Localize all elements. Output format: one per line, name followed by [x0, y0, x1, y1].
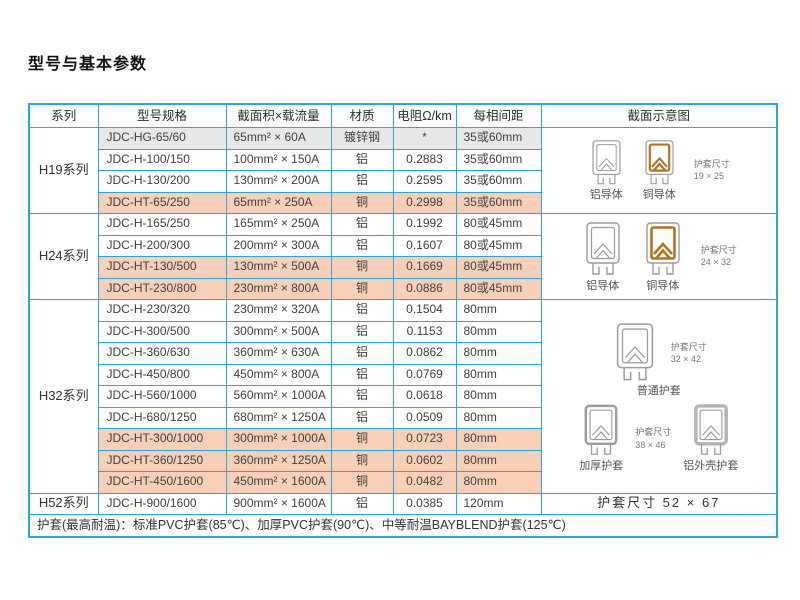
spec-cell: 200mm² × 300A	[226, 235, 331, 257]
series-cell: H32系列	[29, 300, 98, 494]
model-cell: JDC-HG-65/60	[98, 128, 226, 150]
spec-cell: 65mm² × 250A	[226, 192, 331, 214]
spacing-cell: 80mm	[456, 364, 541, 386]
diagram-cell: 护套尺寸32 × 42 普通护套 加厚护套护套尺寸38 × 46 铝外壳护套	[541, 300, 777, 494]
footer-row: 护套(最高耐温)：标准PVC护套(85℃)、加厚PVC护套(90℃)、中等耐温B…	[29, 515, 777, 538]
material-cell: 铜	[331, 257, 393, 279]
spec-cell: 450mm² × 1600A	[226, 472, 331, 494]
spec-cell: 130mm² × 200A	[226, 171, 331, 193]
resistance-cell: 0.1607	[393, 235, 456, 257]
spacing-cell: 80mm	[456, 407, 541, 429]
series-cell: H24系列	[29, 214, 98, 300]
spacing-cell: 35或60mm	[456, 128, 541, 150]
material-cell: 镀锌钢	[331, 128, 393, 150]
diagram-label: 普通护套	[637, 385, 681, 398]
spec-cell: 300mm² × 1000A	[226, 429, 331, 451]
profile-diagram: 铝外壳护套	[683, 404, 738, 473]
model-cell: JDC-H-680/1250	[98, 407, 226, 429]
resistance-cell: 0.0385	[393, 493, 456, 515]
model-cell: JDC-H-230/320	[98, 300, 226, 322]
diagram-label: 加厚护套	[579, 460, 623, 473]
resistance-cell: 0.1504	[393, 300, 456, 322]
model-cell: JDC-HT-230/800	[98, 278, 226, 300]
spec-cell: 680mm² × 1250A	[226, 407, 331, 429]
resistance-cell: 0.0723	[393, 429, 456, 451]
resistance-cell: 0.0886	[393, 278, 456, 300]
diagram-label: 铝外壳护套	[683, 460, 738, 473]
spec-cell: 900mm² × 1600A	[226, 493, 331, 515]
spacing-cell: 80mm	[456, 300, 541, 322]
col-header-section: 截面示意图	[541, 104, 777, 128]
model-cell: JDC-H-100/150	[98, 149, 226, 171]
col-header-model: 型号规格	[98, 104, 226, 128]
model-cell: JDC-HT-130/500	[98, 257, 226, 279]
resistance-cell: *	[393, 128, 456, 150]
model-cell: JDC-H-900/1600	[98, 493, 226, 515]
page: 型号与基本参数 系列 型号规格 截面积×载流量 材质 电阻Ω/km 每相间距 截…	[0, 0, 800, 600]
spec-cell: 65mm² × 60A	[226, 128, 331, 150]
spacing-cell: 80mm	[456, 472, 541, 494]
spacing-cell: 80mm	[456, 343, 541, 365]
spacing-cell: 35或60mm	[456, 192, 541, 214]
spacing-cell: 120mm	[456, 493, 541, 515]
profile-diagram: 铜导体	[641, 221, 685, 293]
sheath-dimension-label: 护套尺寸38 × 46	[635, 426, 671, 450]
model-cell: JDC-H-450/800	[98, 364, 226, 386]
col-header-series: 系列	[29, 104, 98, 128]
profile-normal-icon	[611, 322, 659, 385]
spacing-cell: 80mm	[456, 450, 541, 472]
spec-cell: 300mm² × 500A	[226, 321, 331, 343]
resistance-cell: 0.0862	[393, 343, 456, 365]
table-row: H32系列JDC-H-230/320230mm² × 320A铝0.150480…	[29, 300, 777, 322]
sheath-dimension-label: 护套尺寸24 × 32	[701, 244, 737, 268]
profile-diagram: 铝导体	[581, 221, 625, 293]
model-cell: JDC-H-560/1000	[98, 386, 226, 408]
col-header-area: 截面积×载流量	[226, 104, 331, 128]
material-cell: 铜	[331, 429, 393, 451]
resistance-cell: 0.1153	[393, 321, 456, 343]
spacing-cell: 80mm	[456, 429, 541, 451]
spec-table-body: H19系列JDC-HG-65/6065mm² × 60A镀锌钢*35或60mm …	[29, 128, 777, 538]
table-row: H24系列JDC-H-165/250165mm² × 250A铝0.199280…	[29, 214, 777, 236]
spec-cell: 165mm² × 250A	[226, 214, 331, 236]
material-cell: 铝	[331, 171, 393, 193]
diagram-label: 铝导体	[590, 189, 623, 202]
model-cell: JDC-H-165/250	[98, 214, 226, 236]
spec-cell: 560mm² × 1000A	[226, 386, 331, 408]
sheath-size-text: 护套尺寸 52 × 67	[542, 496, 777, 511]
model-cell: JDC-H-360/630	[98, 343, 226, 365]
resistance-cell: 0.0482	[393, 472, 456, 494]
series-cell: H52系列	[29, 493, 98, 515]
spec-cell: 230mm² × 320A	[226, 300, 331, 322]
material-cell: 铝	[331, 149, 393, 171]
material-cell: 铝	[331, 321, 393, 343]
spacing-cell: 80mm	[456, 386, 541, 408]
spec-cell: 450mm² × 800A	[226, 364, 331, 386]
spacing-cell: 80mm	[456, 321, 541, 343]
diagram-cell: 铝导体 铜导体护套尺寸24 × 32	[541, 214, 777, 300]
spec-cell: 360mm² × 630A	[226, 343, 331, 365]
spacing-cell: 35或60mm	[456, 171, 541, 193]
series-cell: H19系列	[29, 128, 98, 214]
sheath-note: 护套(最高耐温)：标准PVC护套(85℃)、加厚PVC护套(90℃)、中等耐温B…	[29, 515, 777, 538]
diagram-cell: 铝导体 铜导体护套尺寸19 × 25	[541, 128, 777, 214]
model-cell: JDC-H-200/300	[98, 235, 226, 257]
material-cell: 铝	[331, 493, 393, 515]
model-cell: JDC-HT-300/1000	[98, 429, 226, 451]
model-cell: JDC-HT-360/1250	[98, 450, 226, 472]
col-header-spacing: 每相间距	[456, 104, 541, 128]
diagram-label: 铝导体	[586, 280, 619, 293]
profile-aluminum-icon	[588, 139, 625, 188]
resistance-cell: 0.2595	[393, 171, 456, 193]
model-cell: JDC-H-300/500	[98, 321, 226, 343]
spec-cell: 360mm² × 1250A	[226, 450, 331, 472]
material-cell: 铜	[331, 192, 393, 214]
col-header-material: 材质	[331, 104, 393, 128]
profile-diagram: 铝导体	[588, 139, 625, 202]
spec-cell: 100mm² × 150A	[226, 149, 331, 171]
material-cell: 铝	[331, 300, 393, 322]
spacing-cell: 35或60mm	[456, 149, 541, 171]
page-title: 型号与基本参数	[28, 50, 147, 74]
sheath-dimension-label: 护套尺寸32 × 42	[671, 341, 707, 365]
material-cell: 铝	[331, 407, 393, 429]
diagram-label: 铜导体	[646, 280, 679, 293]
material-cell: 铜	[331, 472, 393, 494]
spacing-cell: 80或45mm	[456, 278, 541, 300]
resistance-cell: 0.2998	[393, 192, 456, 214]
spacing-cell: 80或45mm	[456, 214, 541, 236]
material-cell: 铝	[331, 214, 393, 236]
resistance-cell: 0.0769	[393, 364, 456, 386]
material-cell: 铜	[331, 278, 393, 300]
model-cell: JDC-HT-65/250	[98, 192, 226, 214]
spec-table: 系列 型号规格 截面积×载流量 材质 电阻Ω/km 每相间距 截面示意图 H19…	[28, 103, 778, 538]
profile-copper-icon	[641, 139, 678, 188]
resistance-cell: 0.2883	[393, 149, 456, 171]
table-row: H52系列JDC-H-900/1600900mm² × 1600A铝0.0385…	[29, 493, 777, 515]
sheath-dimension-label: 护套尺寸19 × 25	[694, 158, 730, 182]
profile-diagram: 铜导体	[641, 139, 678, 202]
profile-aluminum-icon	[581, 221, 625, 279]
material-cell: 铝	[331, 343, 393, 365]
profile-shell-icon	[690, 404, 732, 459]
spacing-cell: 80或45mm	[456, 235, 541, 257]
resistance-cell: 0.1669	[393, 257, 456, 279]
resistance-cell: 0.0509	[393, 407, 456, 429]
table-row: H19系列JDC-HG-65/6065mm² × 60A镀锌钢*35或60mm …	[29, 128, 777, 150]
col-header-resistance: 电阻Ω/km	[393, 104, 456, 128]
material-cell: 铝	[331, 364, 393, 386]
model-cell: JDC-H-130/200	[98, 171, 226, 193]
spacing-cell: 80或45mm	[456, 257, 541, 279]
model-cell: JDC-HT-450/1600	[98, 472, 226, 494]
diagram-label: 铜导体	[643, 189, 676, 202]
resistance-cell: 0.1992	[393, 214, 456, 236]
resistance-cell: 0.0602	[393, 450, 456, 472]
header-row: 系列 型号规格 截面积×载流量 材质 电阻Ω/km 每相间距 截面示意图	[29, 104, 777, 128]
material-cell: 铝	[331, 386, 393, 408]
profile-thick-icon	[580, 404, 622, 459]
spec-cell: 230mm² × 800A	[226, 278, 331, 300]
material-cell: 铝	[331, 235, 393, 257]
diagram-cell: 护套尺寸 52 × 67	[541, 493, 777, 515]
profile-copper-icon	[641, 221, 685, 279]
resistance-cell: 0.0618	[393, 386, 456, 408]
spec-cell: 130mm² × 500A	[226, 257, 331, 279]
material-cell: 铜	[331, 450, 393, 472]
profile-diagram: 加厚护套	[579, 404, 623, 473]
